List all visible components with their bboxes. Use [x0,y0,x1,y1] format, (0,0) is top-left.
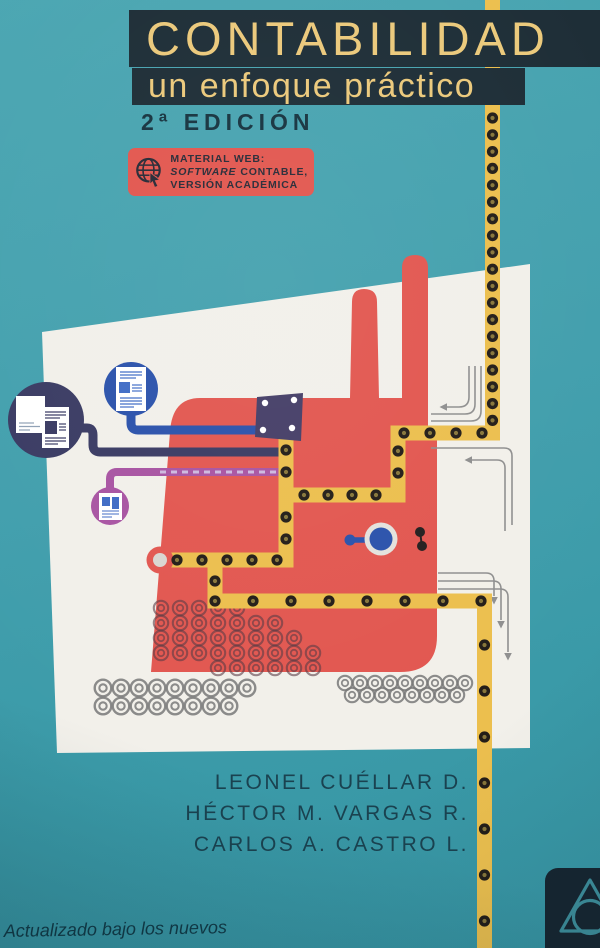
pipe-end-cap [147,547,174,574]
authors-list: LEONEL CUÉLLAR D. HÉCTOR M. VARGAS R. CA… [185,767,469,860]
bottom-note: Actualizado bajo los nuevos [4,917,227,942]
badge-line-1: MATERIAL WEB: [170,153,308,166]
blue-document-circle-icon [104,362,158,416]
title-band: CONTABILIDAD [129,10,600,67]
badge-line-3: VERSIÓN ACADÉMICA [170,179,308,192]
globe-cursor-icon [134,150,164,194]
book-subtitle: un enfoque práctico [132,68,525,104]
subtitle-band: un enfoque práctico [132,68,525,105]
book-cover: CONTABILIDAD un enfoque práctico 2ª EDIC… [0,0,600,948]
junction-box [255,393,303,441]
badge-line-2-contable: CONTABLE, [240,166,308,178]
author-name: LEONEL CUÉLLAR D. [185,767,469,798]
edition-label: 2ª EDICIÓN [141,109,315,136]
documents-circle-icon [8,382,84,458]
badge-line-2-software: SOFTWARE [170,166,236,178]
author-name: CARLOS A. CASTRO L. [185,829,469,860]
publisher-logo [545,868,600,948]
magenta-document-circle-icon [91,487,129,525]
book-title: CONTABILIDAD [129,10,600,67]
author-name: HÉCTOR M. VARGAS R. [185,798,469,829]
badge-line-2: SOFTWARECONTABLE, [170,166,308,179]
material-web-badge: MATERIAL WEB: SOFTWARECONTABLE, VERSIÓN … [128,148,314,196]
